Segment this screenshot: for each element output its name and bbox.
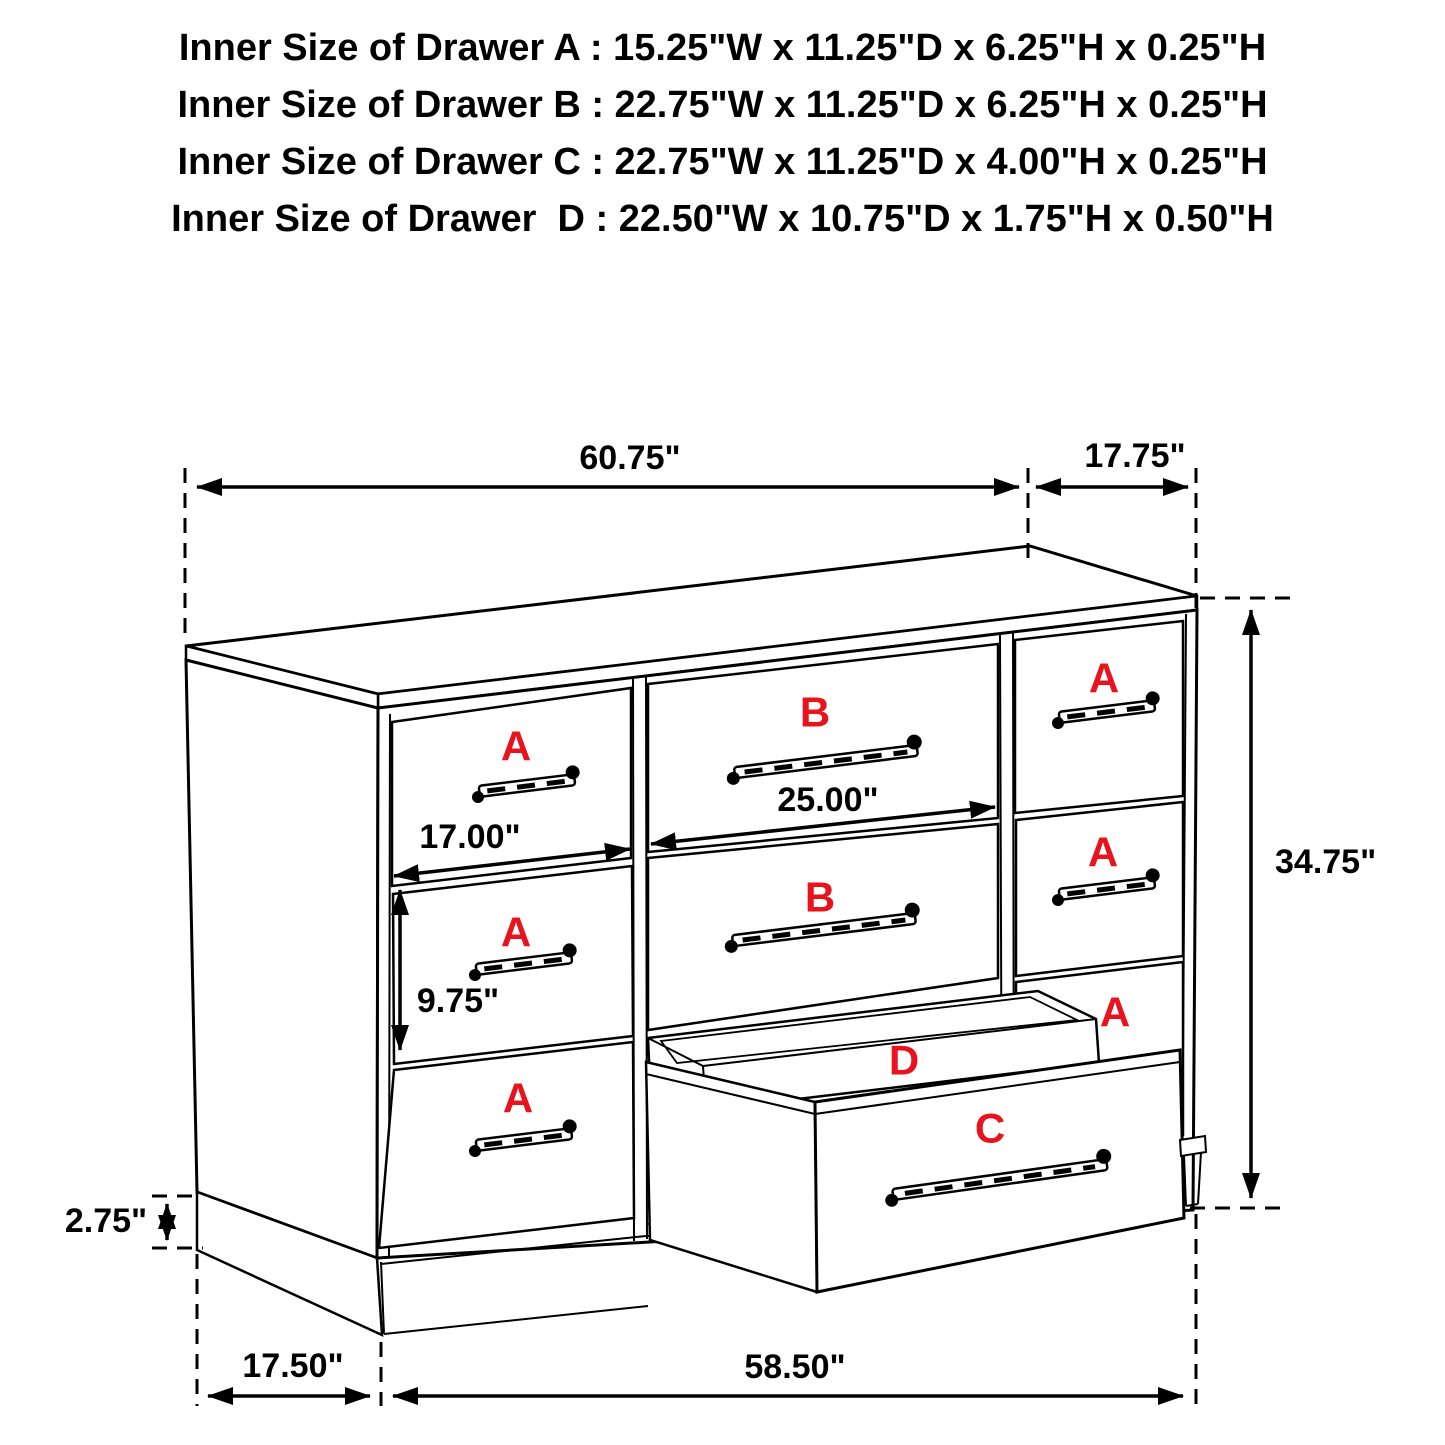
- dim-label-top-depth: 17.75": [1084, 437, 1185, 475]
- drawer-c-left-side: [646, 1062, 817, 1292]
- dim-label-drawer-a-height: 9.75": [417, 982, 499, 1020]
- label-b-middle: B: [805, 874, 835, 921]
- label-a-left-bottom: A: [503, 1075, 533, 1122]
- right-foot-line-b: [1198, 1152, 1201, 1204]
- label-d: D: [889, 1037, 919, 1084]
- dim-label-base-height: 2.75": [65, 1202, 147, 1240]
- dresser-dimension-diagram: 60.75" 17.75" 34.75" 25.00" 17.00" 9.75"…: [0, 0, 1445, 1445]
- label-a-right-top: A: [1089, 655, 1119, 702]
- right-foot-bracket: [1180, 1136, 1206, 1156]
- label-c: C: [975, 1105, 1005, 1152]
- dim-label-overall-height: 34.75": [1275, 843, 1376, 881]
- left-side-panel: [186, 660, 378, 1258]
- label-a-right-middle: A: [1088, 829, 1118, 876]
- label-a-left-top: A: [501, 723, 531, 770]
- label-a-left-middle: A: [501, 909, 531, 956]
- dim-label-base-depth: 17.50": [242, 1347, 343, 1385]
- plinth-front-bottom-line: [384, 1306, 648, 1334]
- label-a-right-bottom: A: [1100, 989, 1130, 1036]
- dim-label-drawer-a-width: 17.00": [419, 818, 520, 856]
- dim-label-drawer-b-width: 25.00": [777, 781, 878, 819]
- label-b-top: B: [800, 689, 830, 736]
- page: Inner Size of Drawer A : 15.25"W x 11.25…: [0, 0, 1445, 1445]
- dim-label-base-width: 58.50": [744, 1348, 845, 1386]
- dim-label-top-width: 60.75": [579, 439, 680, 477]
- open-drawer-c: [646, 1050, 1184, 1292]
